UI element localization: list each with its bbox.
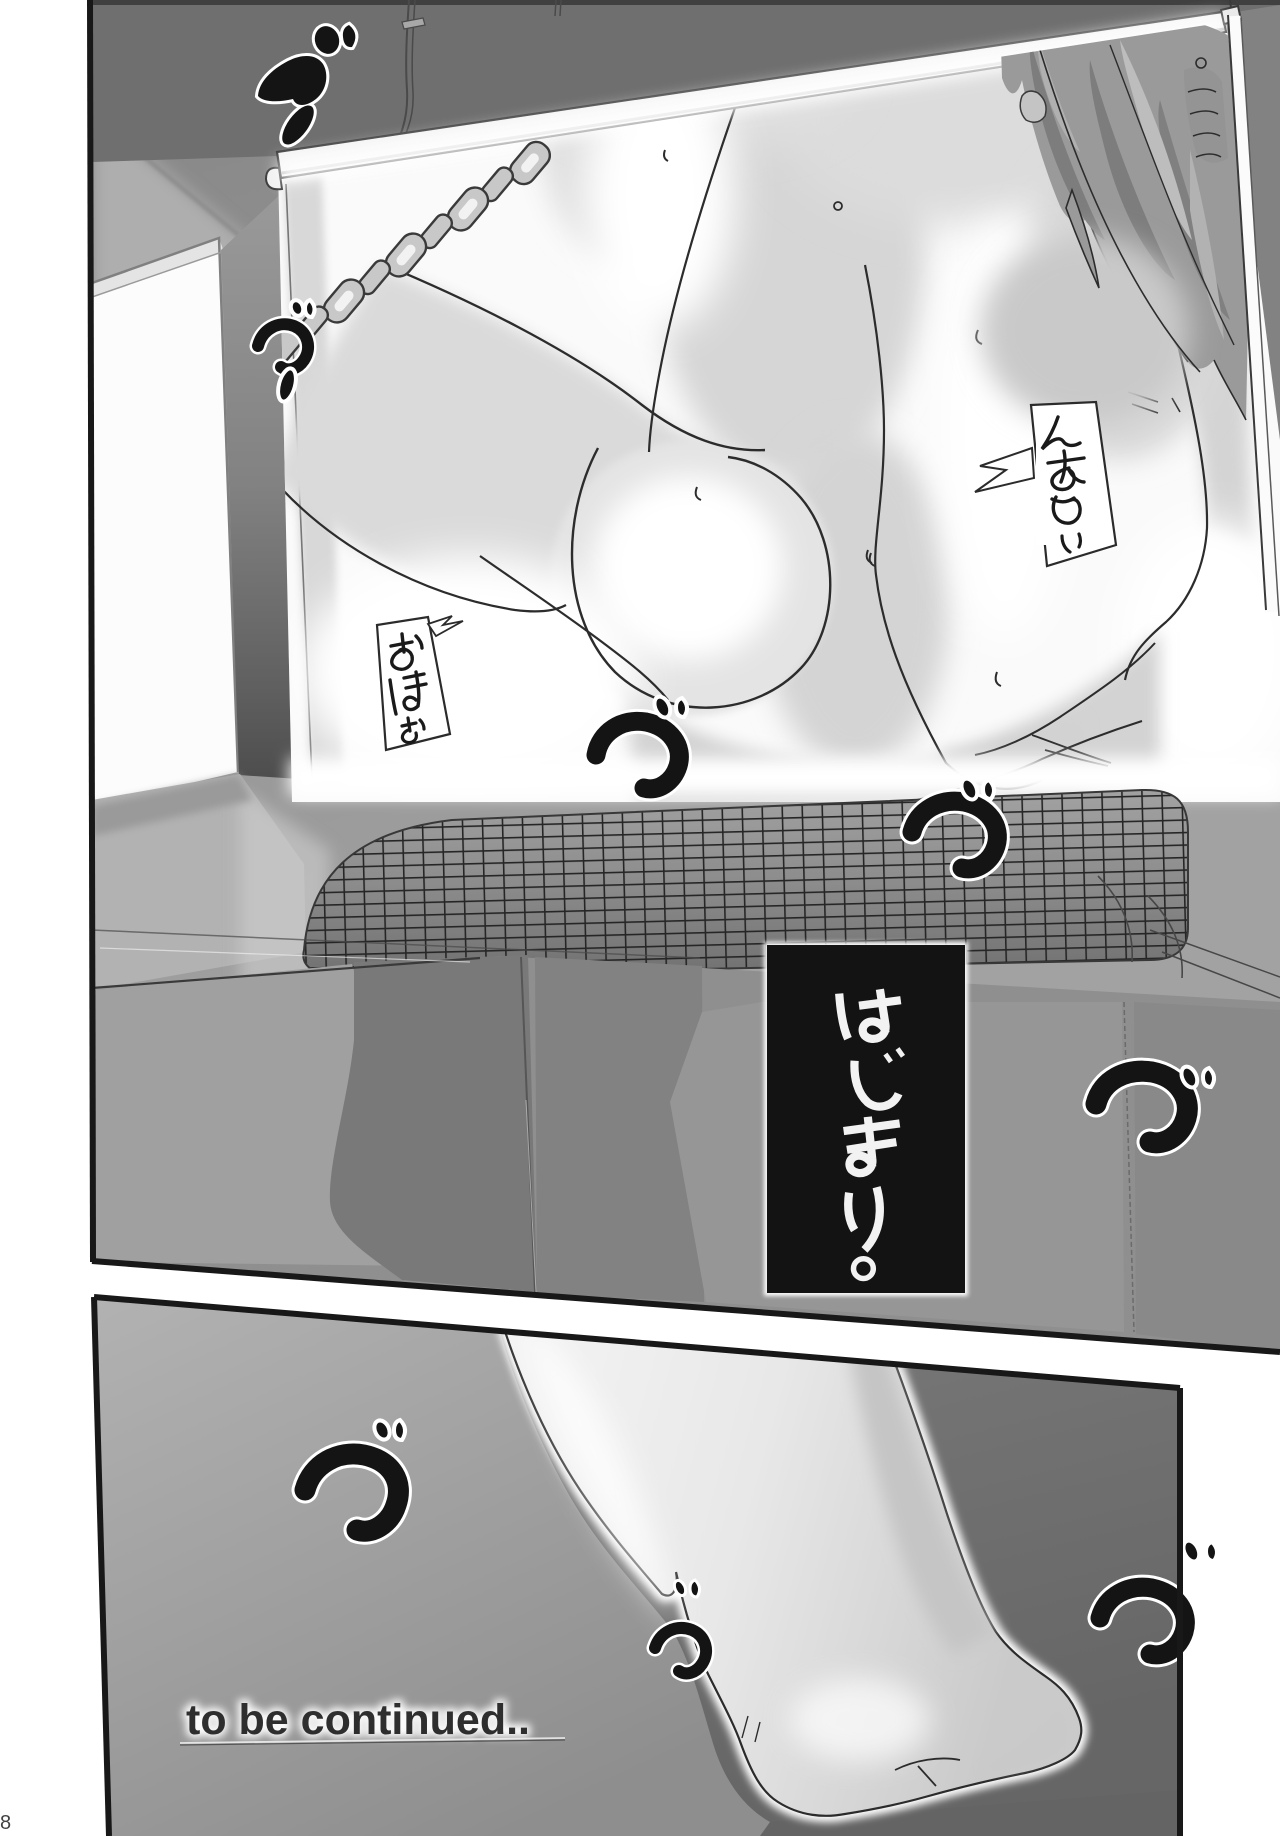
svg-text:8: 8 xyxy=(0,1812,11,1834)
svg-text:to be continued..: to be continued.. xyxy=(186,1696,530,1744)
